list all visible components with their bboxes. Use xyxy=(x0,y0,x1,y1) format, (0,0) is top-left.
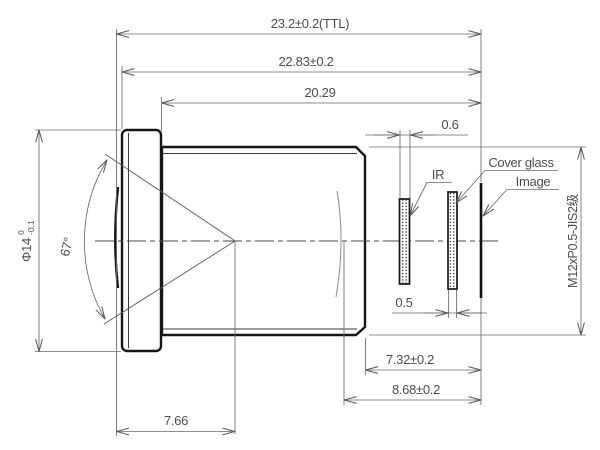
lens-barrel-body xyxy=(115,130,365,351)
cover-glass-label: Cover glass xyxy=(488,155,554,170)
cover-glass-plate xyxy=(448,192,457,289)
dim-ttl-text: 23.2±0.2(TTL) xyxy=(271,16,349,31)
dim-lens-length-text: 22.83±0.2 xyxy=(278,54,333,69)
fov-angle-label: 67° xyxy=(57,236,76,258)
front-cap-outline xyxy=(122,130,161,351)
lens-mechanical-drawing: 67° xyxy=(0,0,600,450)
front-diameter-group: Φ14 0 -0.1 xyxy=(16,220,36,262)
dim-barrel-length-text: 20.29 xyxy=(304,85,335,100)
optical-elements xyxy=(400,183,482,298)
front-diameter-tol-lower: -0.1 xyxy=(26,220,36,235)
front-diameter-label: Φ14 xyxy=(19,238,34,262)
ir-filter-plate xyxy=(400,199,410,284)
drawing-svg: 67° xyxy=(0,0,600,450)
thread-spec-group: M12xP0.5-JIS2级 xyxy=(566,193,580,288)
dim-front-length-text: 7.66 xyxy=(164,413,188,428)
ir-leader xyxy=(410,183,427,217)
front-diameter-tol-upper: 0 xyxy=(16,230,26,235)
fov-angle-label-group: 67° xyxy=(57,236,76,258)
fov-angle-arc xyxy=(84,160,107,319)
ir-label: IR xyxy=(432,167,444,182)
thread-spec-label: M12xP0.5-JIS2级 xyxy=(566,193,580,288)
dim-bfl-text: 8.68±0.2 xyxy=(392,382,440,397)
dim-cover-thickness-text: 0.5 xyxy=(395,295,412,310)
dim-flange-text: 7.32±0.2 xyxy=(386,352,434,367)
image-label: Image xyxy=(516,174,551,189)
image-leader xyxy=(483,190,507,217)
dim-ir-thickness-text: 0.6 xyxy=(441,117,458,132)
